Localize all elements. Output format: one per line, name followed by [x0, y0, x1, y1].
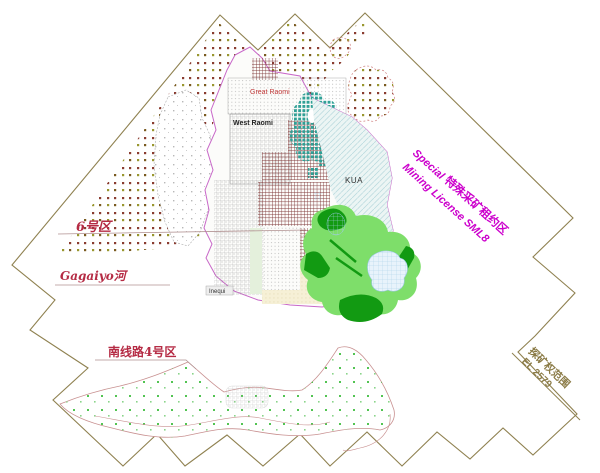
- light-green-strip: [250, 228, 262, 294]
- blue-lagoon-small: [327, 213, 345, 235]
- kua-label: KUA: [345, 176, 363, 185]
- mining-map-canvas: 6号区 Gagaiyo河 南线路4号区 Great Raomi West Rao…: [0, 0, 600, 473]
- maroon-block-5: [262, 152, 288, 182]
- zone6-label: 6号区: [76, 220, 113, 235]
- west-raomi-label: West Raomi: [233, 120, 273, 127]
- river-label: Gagaiyo河: [60, 269, 129, 283]
- south-road-label: 南线路4号区: [108, 344, 176, 359]
- maroon-block-1: [252, 58, 278, 80]
- great-raomi-label: Great Raomi: [250, 89, 290, 96]
- map-svg: 6号区 Gagaiyo河 南线路4号区 Great Raomi West Rao…: [0, 0, 600, 473]
- gray-grid-block-2: [262, 225, 304, 293]
- teal-fragment-2: [308, 168, 318, 178]
- south-road-grid-patch: [226, 386, 268, 408]
- village-label: Inequi: [209, 289, 225, 295]
- blue-lagoon-tiny: [313, 191, 323, 201]
